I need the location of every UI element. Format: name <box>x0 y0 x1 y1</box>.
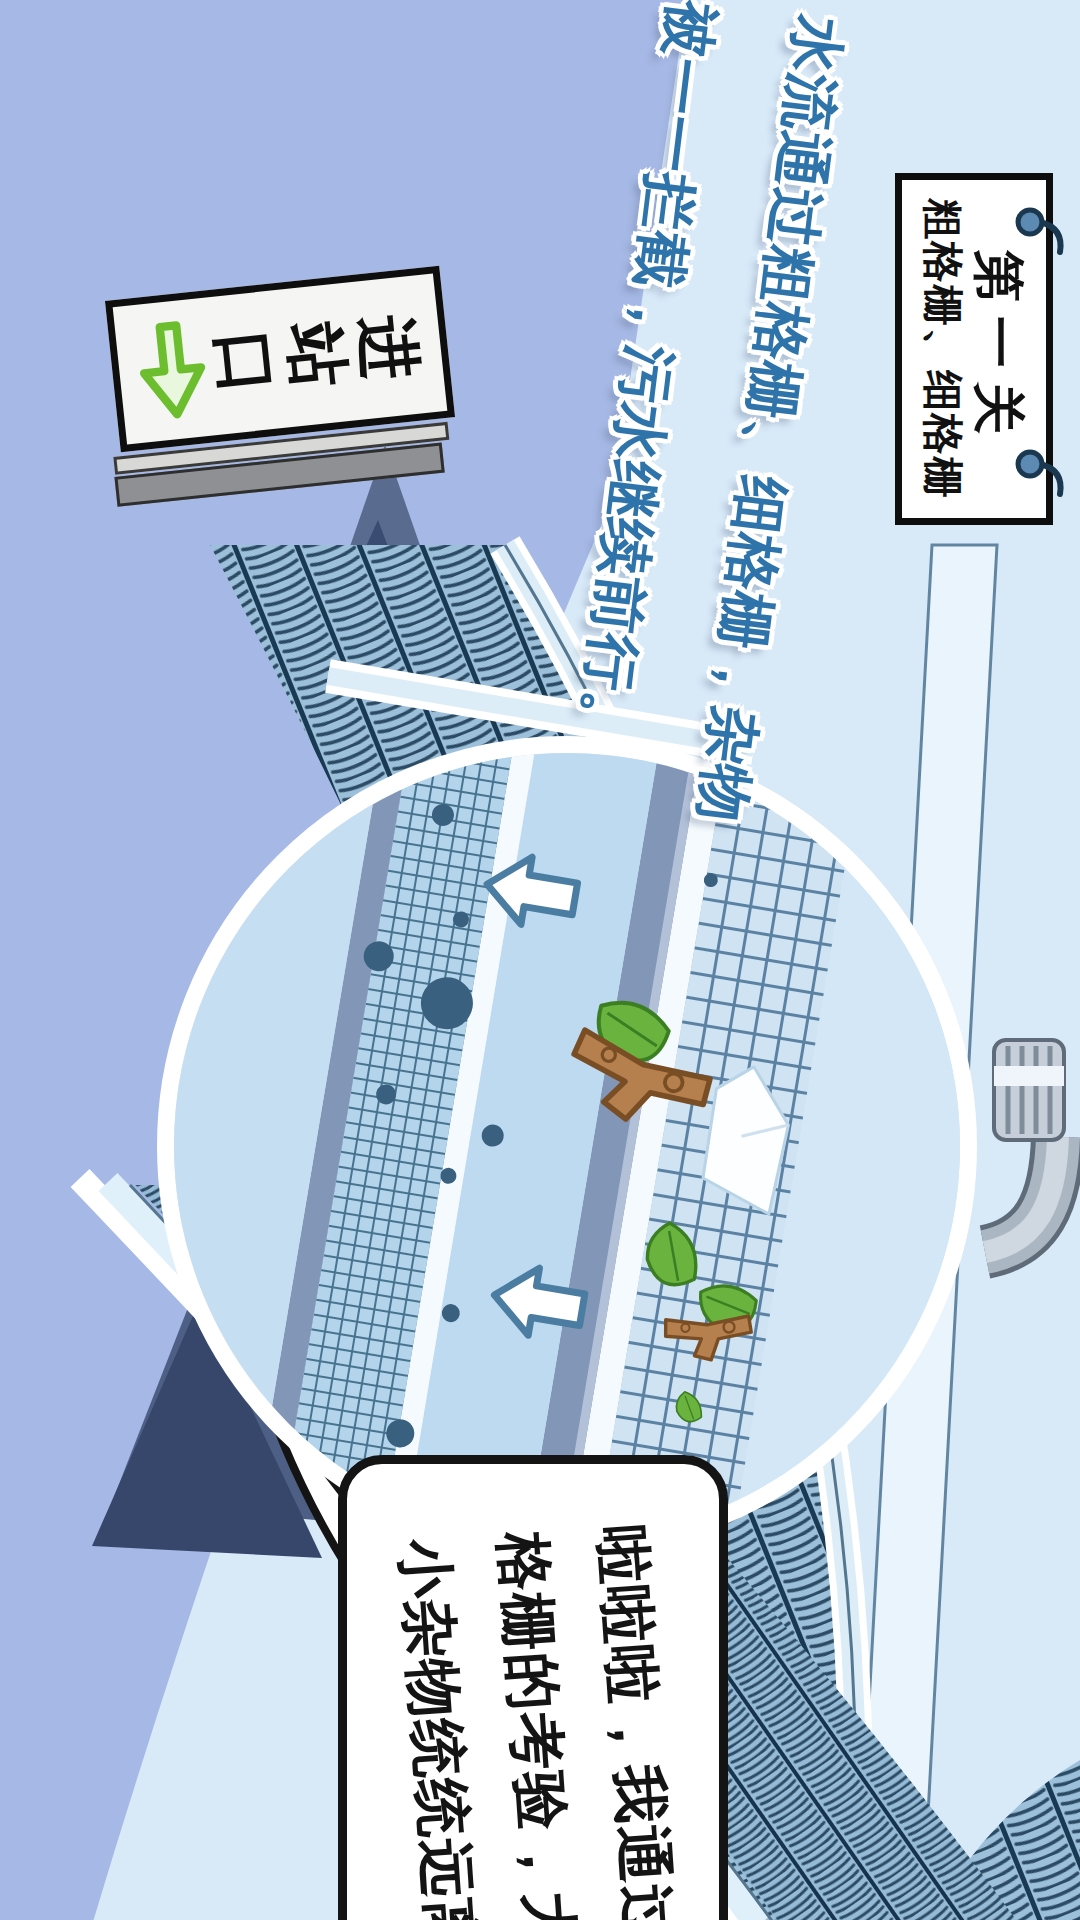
hook-icon <box>1018 452 1061 494</box>
speech-bubble: 啦啦啦，我通过了 格栅的考验，大 小杂物统统远离我 <box>338 1455 728 1920</box>
cross-section-bands <box>174 753 960 1539</box>
sign-hooks <box>1000 0 1080 560</box>
arrow-right-icon <box>131 311 214 430</box>
entrance-char: 进 <box>350 312 426 383</box>
hook-icon <box>1018 210 1061 252</box>
entrance-char: 站 <box>279 320 355 391</box>
comic-page: { "header_sign": { "line1": "第一关", "line… <box>0 0 1080 1920</box>
magnifier-circle <box>157 736 977 1556</box>
entrance-char: 口 <box>207 327 283 398</box>
landscape-scene: 第一关 粗格栅、细格栅 水流通过粗格栅、细格栅，杂物 被一一拦截，污水继续前行。… <box>0 0 1080 1920</box>
pipe-drum <box>985 1040 1064 1252</box>
speech-text: 啦啦啦，我通过了 格栅的考验，大 小杂物统统远离我 <box>375 1522 711 1920</box>
stage-subtitle: 粗格栅、细格栅 <box>923 199 964 500</box>
